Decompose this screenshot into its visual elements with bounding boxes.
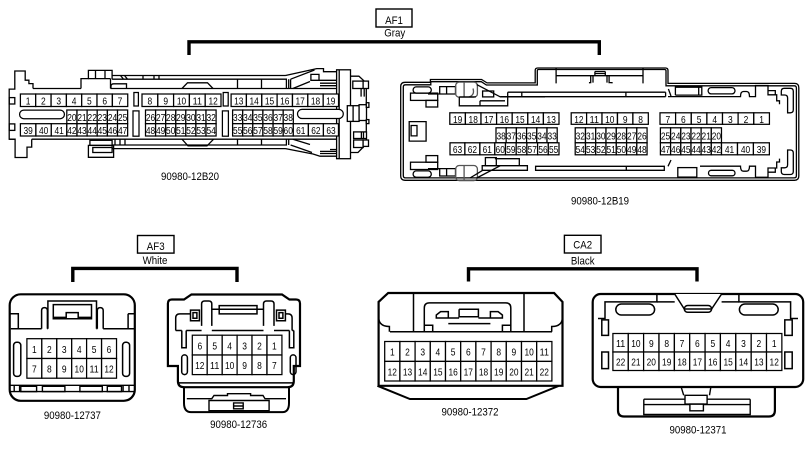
svg-text:11: 11 [193, 96, 202, 108]
svg-text:16: 16 [448, 366, 457, 378]
svg-text:29: 29 [176, 112, 185, 124]
svg-text:30: 30 [186, 112, 195, 124]
svg-text:7: 7 [680, 338, 685, 350]
svg-text:40: 40 [741, 144, 750, 156]
svg-text:63: 63 [326, 125, 335, 137]
svg-text:4: 4 [726, 338, 731, 350]
svg-text:22: 22 [691, 131, 700, 143]
svg-text:18: 18 [677, 356, 686, 368]
svg-text:42: 42 [67, 125, 76, 137]
svg-text:28: 28 [166, 112, 175, 124]
svg-text:31: 31 [586, 131, 595, 143]
svg-text:3: 3 [242, 340, 247, 352]
svg-text:45: 45 [98, 125, 107, 137]
svg-text:57: 57 [253, 125, 262, 137]
svg-text:1: 1 [32, 344, 37, 356]
svg-text:3: 3 [741, 338, 746, 350]
svg-text:41: 41 [54, 125, 63, 137]
svg-text:19: 19 [326, 96, 335, 108]
svg-text:2: 2 [47, 344, 52, 356]
svg-text:39: 39 [757, 144, 766, 156]
svg-text:54: 54 [576, 144, 585, 156]
svg-text:36: 36 [263, 112, 272, 124]
svg-text:53: 53 [196, 125, 205, 137]
svg-text:29: 29 [606, 131, 615, 143]
svg-text:6: 6 [466, 347, 471, 359]
svg-text:12: 12 [574, 114, 583, 126]
svg-text:50: 50 [166, 125, 175, 137]
svg-text:15: 15 [723, 356, 732, 368]
svg-text:10: 10 [631, 338, 640, 350]
svg-text:6: 6 [102, 96, 107, 108]
svg-text:11: 11 [540, 347, 549, 359]
svg-text:10: 10 [177, 96, 186, 108]
svg-text:7: 7 [118, 96, 123, 108]
svg-text:1: 1 [26, 96, 31, 108]
svg-text:22: 22 [88, 112, 97, 124]
svg-text:5: 5 [92, 344, 97, 356]
svg-text:57: 57 [528, 144, 537, 156]
svg-text:12: 12 [770, 356, 779, 368]
svg-text:42: 42 [712, 144, 721, 156]
svg-text:45: 45 [681, 144, 690, 156]
svg-text:90980-12B20: 90980-12B20 [161, 171, 219, 183]
svg-text:11: 11 [590, 114, 599, 126]
svg-text:38: 38 [496, 131, 505, 143]
svg-text:Gray: Gray [384, 28, 405, 40]
svg-text:6: 6 [681, 114, 686, 126]
svg-text:12: 12 [195, 360, 204, 372]
svg-text:24: 24 [108, 112, 117, 124]
svg-text:3: 3 [62, 344, 67, 356]
svg-text:13: 13 [754, 356, 763, 368]
svg-text:18: 18 [469, 114, 478, 126]
svg-text:19: 19 [453, 114, 462, 126]
svg-text:34: 34 [537, 131, 546, 143]
svg-text:50: 50 [617, 144, 626, 156]
svg-text:27: 27 [627, 131, 636, 143]
svg-text:2: 2 [257, 340, 262, 352]
svg-text:6: 6 [695, 338, 700, 350]
svg-text:20: 20 [712, 131, 721, 143]
svg-text:9: 9 [512, 347, 517, 359]
svg-text:Black: Black [571, 256, 595, 268]
svg-text:54: 54 [206, 125, 215, 137]
svg-text:17: 17 [484, 114, 493, 126]
svg-text:47: 47 [661, 144, 670, 156]
svg-text:4: 4 [72, 96, 77, 108]
svg-text:4: 4 [436, 347, 441, 359]
svg-text:20: 20 [647, 356, 656, 368]
svg-text:52: 52 [596, 144, 605, 156]
svg-text:44: 44 [88, 125, 97, 137]
svg-text:5: 5 [710, 338, 715, 350]
svg-text:47: 47 [118, 125, 127, 137]
svg-text:37: 37 [273, 112, 282, 124]
svg-text:32: 32 [206, 112, 215, 124]
svg-text:5: 5 [697, 114, 702, 126]
svg-text:49: 49 [156, 125, 165, 137]
svg-text:White: White [143, 255, 168, 267]
svg-text:62: 62 [311, 125, 320, 137]
svg-text:4: 4 [227, 340, 232, 352]
svg-text:9: 9 [62, 364, 67, 376]
svg-text:17: 17 [295, 96, 304, 108]
svg-text:49: 49 [627, 144, 636, 156]
svg-text:1: 1 [772, 338, 777, 350]
svg-text:19: 19 [662, 356, 671, 368]
svg-text:24: 24 [671, 131, 680, 143]
svg-text:48: 48 [146, 125, 155, 137]
svg-text:3: 3 [728, 114, 733, 126]
svg-text:26: 26 [637, 131, 646, 143]
svg-text:8: 8 [638, 114, 643, 126]
svg-text:11: 11 [210, 360, 219, 372]
svg-text:61: 61 [296, 125, 305, 137]
svg-text:7: 7 [32, 364, 37, 376]
svg-text:13: 13 [234, 96, 243, 108]
svg-text:13: 13 [403, 366, 412, 378]
svg-text:1: 1 [390, 347, 395, 359]
svg-text:3: 3 [420, 347, 425, 359]
svg-text:4: 4 [712, 114, 717, 126]
svg-text:48: 48 [637, 144, 646, 156]
svg-text:10: 10 [75, 364, 84, 376]
svg-text:34: 34 [243, 112, 252, 124]
svg-text:28: 28 [617, 131, 626, 143]
svg-text:21: 21 [702, 131, 711, 143]
svg-text:9: 9 [242, 360, 247, 372]
svg-text:2: 2 [41, 96, 46, 108]
svg-text:59: 59 [506, 144, 515, 156]
svg-text:62: 62 [468, 144, 477, 156]
svg-text:14: 14 [418, 366, 427, 378]
svg-text:8: 8 [496, 347, 501, 359]
svg-text:37: 37 [507, 131, 516, 143]
svg-text:14: 14 [249, 96, 258, 108]
svg-text:25: 25 [661, 131, 670, 143]
svg-text:58: 58 [517, 144, 526, 156]
svg-text:10: 10 [524, 347, 533, 359]
svg-text:9: 9 [623, 114, 628, 126]
svg-text:90980-12736: 90980-12736 [210, 419, 267, 431]
svg-text:20: 20 [509, 366, 518, 378]
svg-text:46: 46 [671, 144, 680, 156]
svg-text:23: 23 [681, 131, 690, 143]
svg-text:51: 51 [606, 144, 615, 156]
svg-text:53: 53 [586, 144, 595, 156]
svg-text:7: 7 [272, 360, 277, 372]
svg-text:46: 46 [108, 125, 117, 137]
svg-text:56: 56 [538, 144, 547, 156]
svg-text:18: 18 [311, 96, 320, 108]
svg-text:19: 19 [494, 366, 503, 378]
svg-text:31: 31 [196, 112, 205, 124]
svg-text:33: 33 [233, 112, 242, 124]
svg-text:12: 12 [388, 366, 397, 378]
svg-text:16: 16 [280, 96, 289, 108]
svg-text:55: 55 [233, 125, 242, 137]
svg-text:2: 2 [757, 338, 762, 350]
svg-text:41: 41 [725, 144, 734, 156]
svg-text:27: 27 [156, 112, 165, 124]
svg-text:90980-12372: 90980-12372 [442, 407, 499, 419]
svg-text:90980-12737: 90980-12737 [44, 410, 101, 422]
svg-text:15: 15 [515, 114, 524, 126]
svg-text:3: 3 [56, 96, 61, 108]
svg-text:9: 9 [649, 338, 654, 350]
svg-text:17: 17 [464, 366, 473, 378]
svg-text:60: 60 [284, 125, 293, 137]
svg-text:5: 5 [451, 347, 456, 359]
svg-text:33: 33 [547, 131, 556, 143]
svg-text:14: 14 [531, 114, 540, 126]
svg-text:11: 11 [616, 338, 625, 350]
svg-text:17: 17 [693, 356, 702, 368]
svg-text:1: 1 [272, 340, 277, 352]
svg-text:56: 56 [243, 125, 252, 137]
svg-text:63: 63 [453, 144, 462, 156]
svg-text:16: 16 [708, 356, 717, 368]
svg-text:52: 52 [186, 125, 195, 137]
svg-text:59: 59 [273, 125, 282, 137]
svg-text:43: 43 [702, 144, 711, 156]
svg-text:22: 22 [540, 366, 549, 378]
svg-text:22: 22 [616, 356, 625, 368]
svg-text:44: 44 [691, 144, 700, 156]
svg-text:60: 60 [496, 144, 505, 156]
svg-text:38: 38 [284, 112, 293, 124]
svg-text:8: 8 [664, 338, 669, 350]
svg-text:35: 35 [527, 131, 536, 143]
svg-text:18: 18 [479, 366, 488, 378]
svg-text:14: 14 [739, 356, 748, 368]
svg-text:2: 2 [744, 114, 749, 126]
svg-text:4: 4 [77, 344, 82, 356]
svg-text:55: 55 [549, 144, 558, 156]
svg-text:5: 5 [87, 96, 92, 108]
svg-text:23: 23 [98, 112, 107, 124]
svg-text:32: 32 [576, 131, 585, 143]
svg-text:21: 21 [77, 112, 86, 124]
svg-text:15: 15 [265, 96, 274, 108]
svg-text:12: 12 [208, 96, 217, 108]
svg-text:43: 43 [77, 125, 86, 137]
svg-text:51: 51 [176, 125, 185, 137]
svg-text:5: 5 [212, 340, 217, 352]
svg-text:CA2: CA2 [573, 239, 592, 251]
svg-text:15: 15 [433, 366, 442, 378]
svg-text:21: 21 [631, 356, 640, 368]
svg-text:35: 35 [253, 112, 262, 124]
svg-text:40: 40 [39, 125, 48, 137]
svg-text:21: 21 [524, 366, 533, 378]
svg-text:10: 10 [605, 114, 614, 126]
svg-text:8: 8 [257, 360, 262, 372]
svg-text:2: 2 [405, 347, 410, 359]
svg-text:20: 20 [67, 112, 76, 124]
svg-text:6: 6 [197, 340, 202, 352]
svg-text:AF3: AF3 [147, 241, 165, 253]
svg-text:12: 12 [104, 364, 113, 376]
svg-text:25: 25 [118, 112, 127, 124]
svg-text:26: 26 [146, 112, 155, 124]
svg-text:7: 7 [665, 114, 670, 126]
svg-text:13: 13 [547, 114, 556, 126]
svg-text:90980-12371: 90980-12371 [670, 425, 727, 437]
svg-text:9: 9 [163, 96, 168, 108]
svg-text:30: 30 [596, 131, 605, 143]
svg-text:10: 10 [225, 360, 234, 372]
svg-text:6: 6 [107, 344, 112, 356]
svg-text:61: 61 [483, 144, 492, 156]
svg-text:16: 16 [500, 114, 509, 126]
svg-text:90980-12B19: 90980-12B19 [571, 196, 629, 208]
svg-text:8: 8 [148, 96, 153, 108]
svg-text:1: 1 [759, 114, 764, 126]
svg-text:AF1: AF1 [385, 15, 403, 27]
svg-text:58: 58 [263, 125, 272, 137]
svg-text:39: 39 [23, 125, 32, 137]
svg-text:11: 11 [89, 364, 98, 376]
svg-text:8: 8 [47, 364, 52, 376]
svg-text:7: 7 [481, 347, 486, 359]
svg-text:36: 36 [517, 131, 526, 143]
